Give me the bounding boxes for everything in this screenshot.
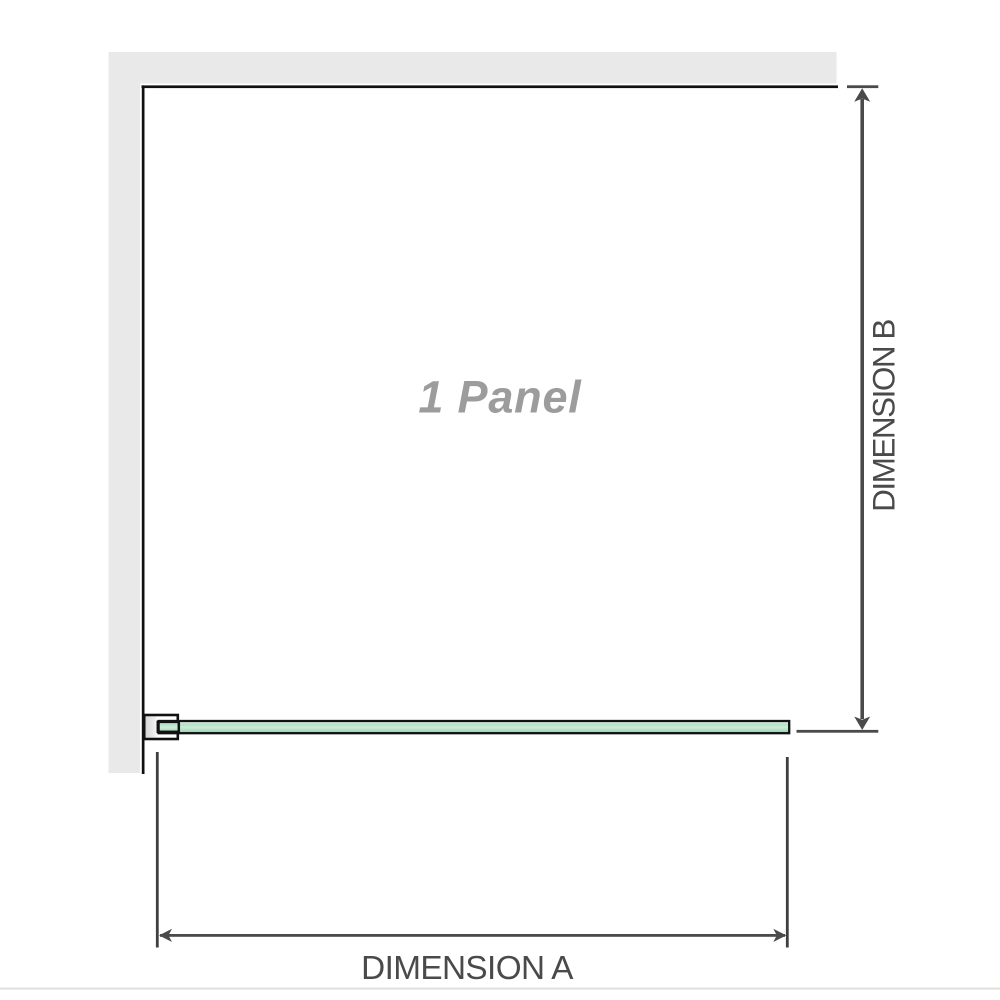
svg-text:1 Panel: 1 Panel xyxy=(418,372,582,423)
svg-text:DIMENSION B: DIMENSION B xyxy=(866,320,902,512)
svg-text:DIMENSION A: DIMENSION A xyxy=(361,950,574,987)
